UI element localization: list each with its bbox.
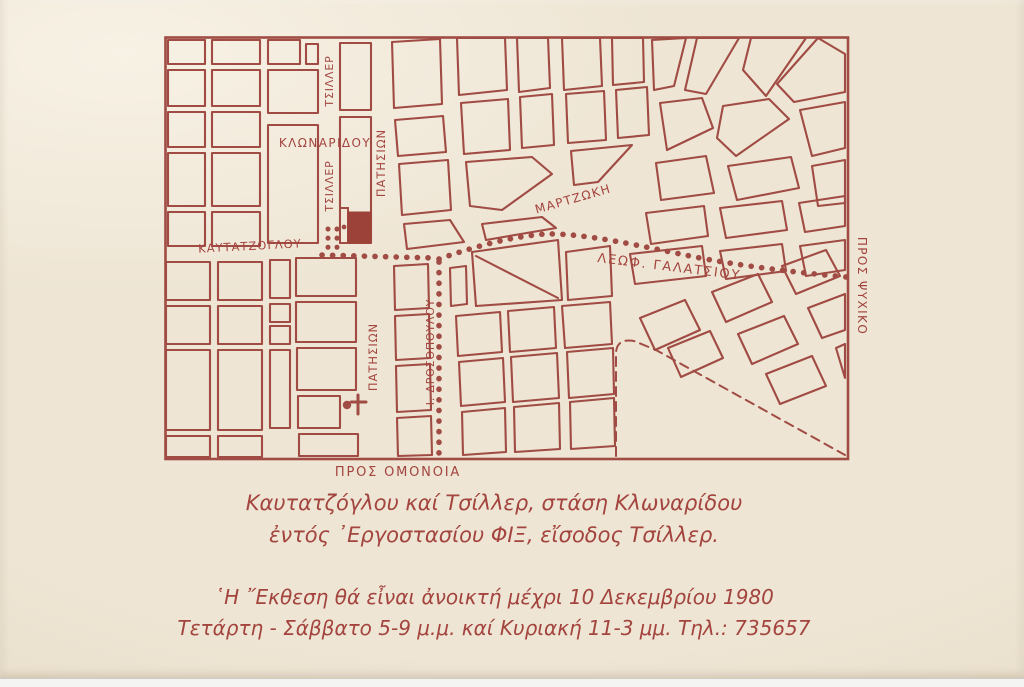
city-block — [476, 256, 558, 298]
city-block — [660, 98, 713, 150]
city-block — [268, 40, 300, 64]
city-block — [571, 145, 632, 185]
city-block — [777, 38, 845, 102]
city-block — [800, 102, 845, 156]
city-block — [562, 302, 612, 348]
direction-label-pros-psychiko: ΠΡΟΣ ΨΥΧΙΚΟ — [855, 237, 869, 335]
scan-edge — [0, 678, 1024, 687]
city-block — [456, 312, 502, 356]
city-block — [836, 344, 845, 378]
entrance-dot — [342, 225, 347, 230]
street-label-tsiller-lower: ΤΣΙΛΛΕΡ — [323, 160, 336, 212]
city-block — [166, 306, 210, 344]
city-block — [212, 40, 260, 64]
city-block — [168, 153, 205, 206]
boundary-dashed-line — [616, 341, 845, 456]
city-block — [562, 38, 602, 90]
city-block — [616, 87, 649, 138]
city-block — [738, 316, 798, 364]
city-block — [668, 331, 723, 377]
city-block — [218, 262, 262, 300]
route-dotted — [322, 229, 846, 455]
city-block — [520, 94, 554, 148]
city-block — [218, 306, 262, 344]
city-block — [646, 206, 708, 244]
city-block — [296, 258, 356, 296]
city-block — [218, 350, 262, 430]
city-block — [472, 240, 562, 306]
city-block — [340, 43, 371, 110]
street-label-drosopoulou: Ι. ΔΡΟΣΟΠΟΥΛΟΥ — [424, 299, 437, 405]
city-block — [306, 44, 318, 64]
city-block — [728, 157, 799, 200]
exhibition-location-marker — [348, 212, 371, 243]
street-label-klonaridou: ΚΛΩΝΑΡΙΔΟΥ — [279, 136, 371, 150]
city-block — [166, 262, 210, 300]
city-block — [640, 300, 700, 350]
city-block — [652, 38, 686, 90]
city-block — [270, 304, 290, 322]
city-block — [212, 153, 260, 206]
city-block — [517, 38, 550, 92]
city-block — [297, 348, 356, 390]
city-block — [299, 434, 358, 456]
city-block — [462, 408, 506, 455]
city-block — [212, 70, 260, 106]
city-block — [459, 358, 505, 406]
city-block — [168, 70, 205, 106]
caption-block: Καυτατζόγλου καί Τσίλλερ, στάση Κλωναρίδ… — [0, 492, 1006, 639]
city-block — [799, 196, 845, 232]
city-block — [511, 353, 559, 402]
city-block — [212, 112, 260, 147]
city-block — [270, 350, 290, 428]
city-block — [166, 350, 210, 430]
city-block — [392, 39, 442, 108]
city-block — [720, 201, 787, 238]
invitation-card: ΚΛΩΝΑΡΙΔΟΥ ΤΣΙΛΛΕΡ ΤΣΙΛΛΕΡ ΠΑΤΗΣΙΩΝ ΠΑΤΗ… — [0, 0, 1024, 679]
city-block — [612, 38, 644, 85]
info-line-2: Τετάρτη - Σάββατο 5-9 μ.μ. καί Κυριακή 1… — [0, 618, 1006, 639]
street-label-martzoki: ΜΑΡΤΖΩΚΗ — [533, 181, 612, 216]
city-block — [566, 91, 606, 143]
city-block — [268, 70, 318, 113]
city-block — [567, 348, 614, 398]
city-block — [397, 416, 432, 456]
street-label-tsiller-upper: ΤΣΙΛΛΕΡ — [323, 55, 336, 107]
city-block — [168, 112, 205, 147]
city-block — [685, 38, 739, 94]
address-line-2: ἐντός ᾿Εργοστασίου ΦΙΞ, εἴσοδος Τσίλλερ. — [0, 524, 1006, 546]
city-block — [450, 266, 467, 306]
city-block — [298, 396, 340, 428]
city-block — [461, 99, 510, 154]
city-block — [808, 294, 845, 338]
city-block — [270, 260, 290, 298]
city-block — [717, 99, 789, 156]
city-block — [404, 220, 464, 249]
city-block — [168, 40, 205, 64]
city-block — [395, 116, 446, 156]
info-line-1: ῾Η ῎Εκθεση θά εἶναι ἀνοικτή μέχρι 10 Δεκ… — [0, 587, 1006, 608]
city-block — [743, 38, 806, 96]
city-block — [296, 302, 356, 342]
city-block — [656, 156, 714, 200]
street-label-patision-upper: ΠΑΤΗΣΙΩΝ — [374, 129, 388, 197]
city-block — [457, 38, 507, 95]
city-block — [766, 356, 826, 404]
direction-label-pros-omonoia: ΠΡΟΣ ΟΜΟΝΟΙΑ — [335, 465, 461, 480]
city-block — [570, 398, 615, 449]
street-label-patision-lower: ΠΑΤΗΣΙΩΝ — [366, 323, 380, 391]
city-block — [508, 307, 556, 352]
city-block — [514, 403, 560, 452]
city-block — [270, 326, 290, 344]
church-icon — [343, 395, 366, 414]
city-block — [399, 160, 451, 215]
address-line-1: Καυτατζόγλου καί Τσίλλερ, στάση Κλωναρίδ… — [0, 492, 1006, 514]
street-label-kautatzoglou: ΚΑΥΤΑΤΖΟΓΛΟΥ — [198, 236, 302, 255]
city-block — [218, 436, 262, 457]
city-block — [166, 436, 210, 457]
